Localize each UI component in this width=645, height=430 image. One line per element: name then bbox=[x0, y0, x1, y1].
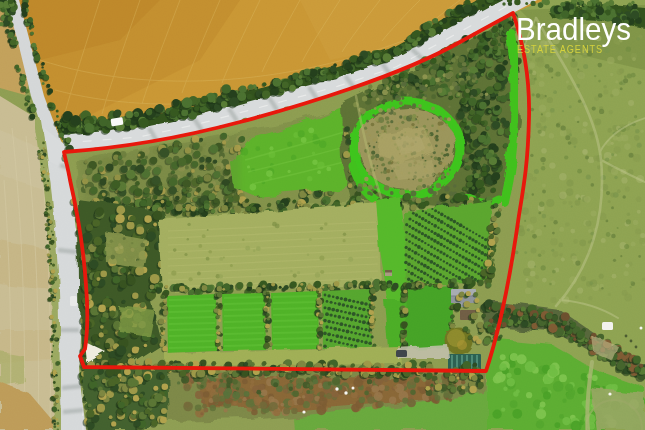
svg-text:ESTATE AGENTS: ESTATE AGENTS bbox=[517, 42, 603, 55]
